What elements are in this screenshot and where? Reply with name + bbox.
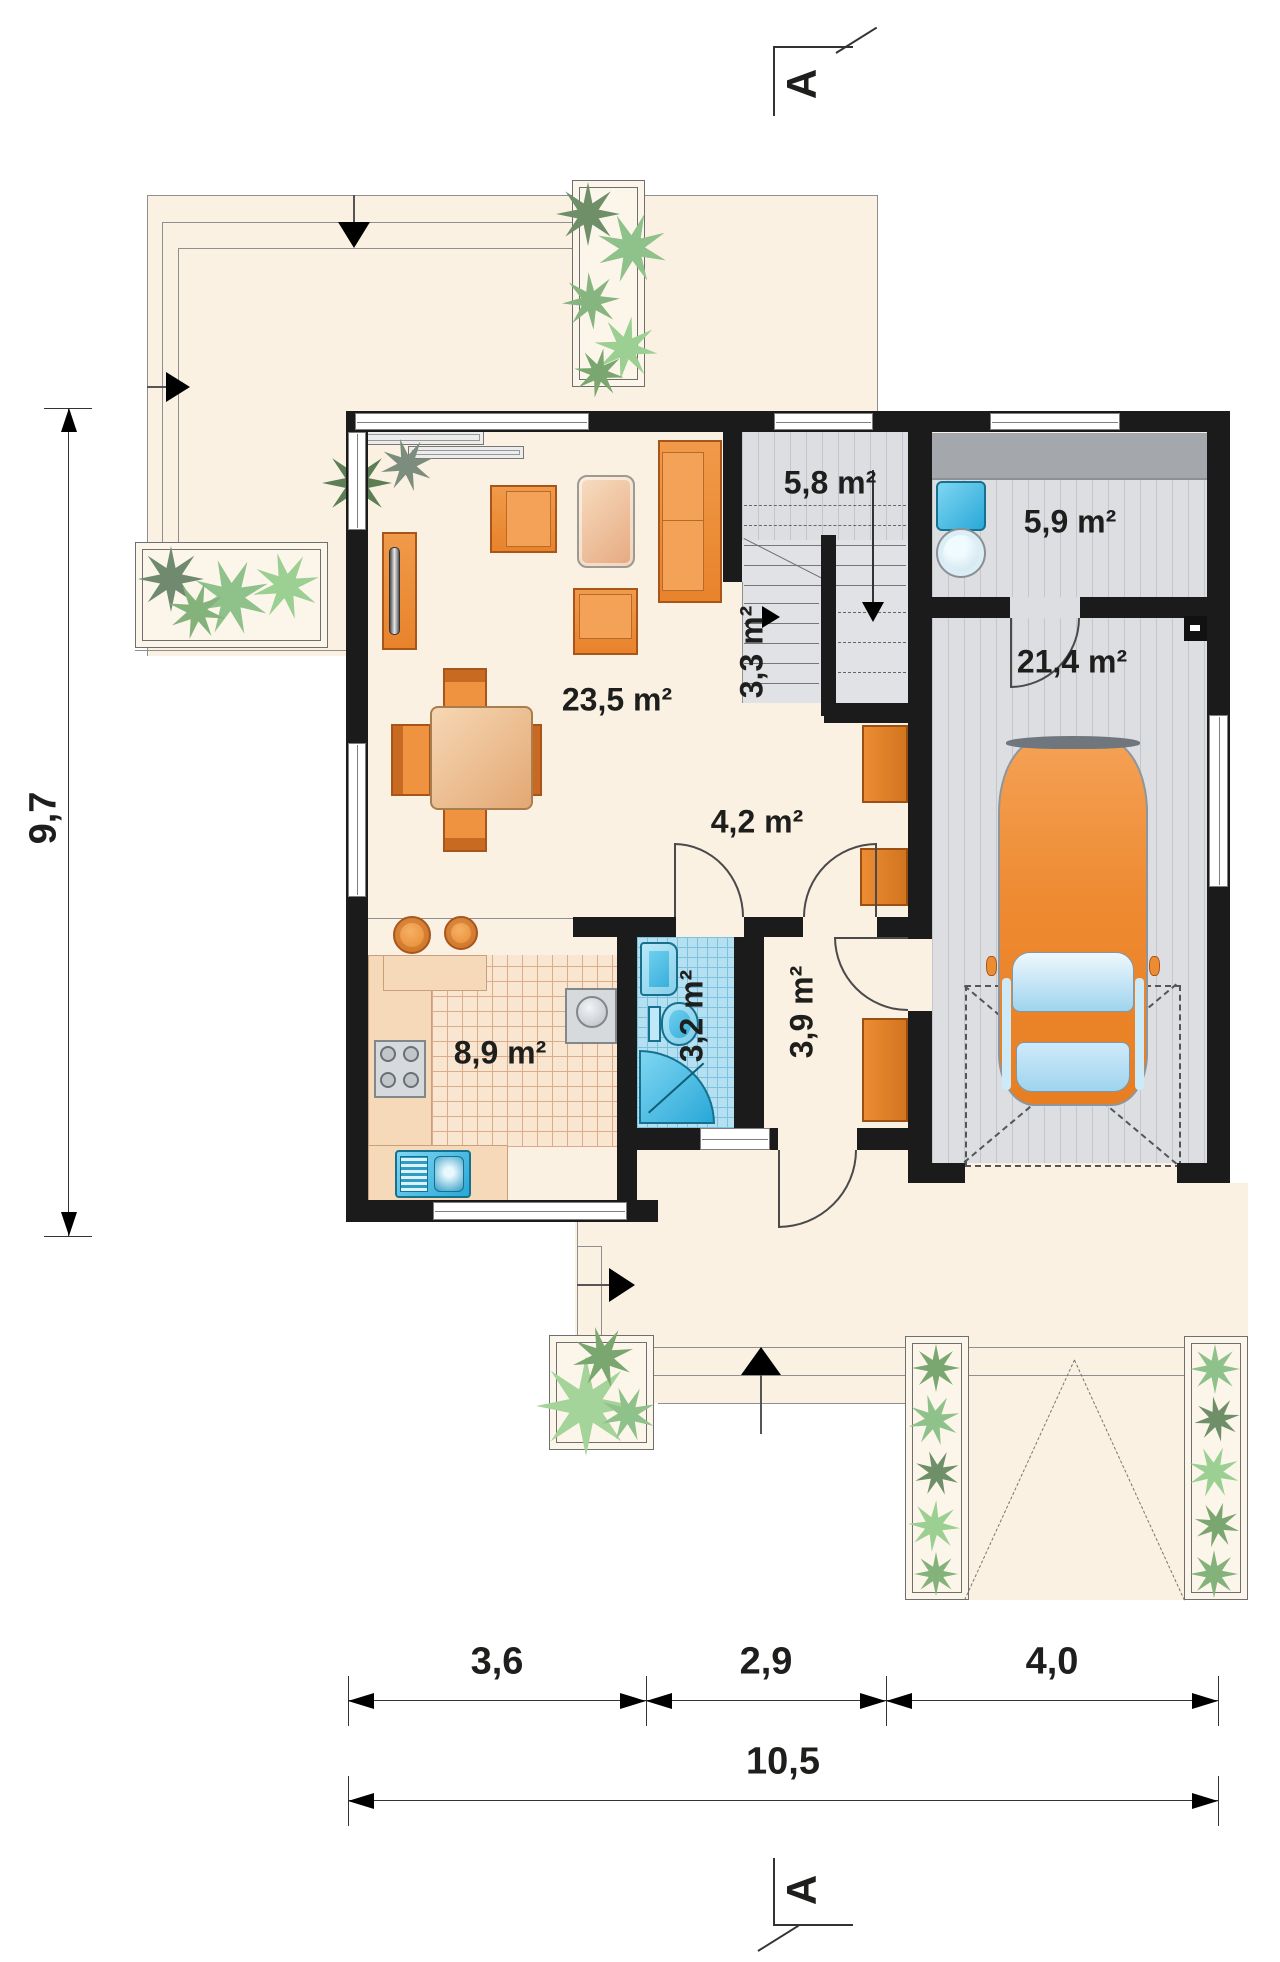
wall-bath-hall — [734, 937, 764, 1128]
terrace-edge — [135, 650, 346, 651]
dim-label-height: 9,7 — [23, 792, 66, 845]
window-bench — [359, 430, 484, 445]
dim-line — [68, 408, 69, 1236]
dim-arrow-left — [348, 1693, 374, 1709]
car-side-window — [1135, 978, 1144, 1090]
room-label-vestibule: 4,2 m² — [711, 804, 803, 841]
door-leaf — [674, 843, 676, 917]
section-marker-slash — [835, 27, 877, 54]
section-marker-line — [773, 1924, 853, 1926]
door-opening — [778, 1128, 857, 1150]
walk-direction-arrow-down — [338, 222, 370, 248]
porch-step-line — [601, 1375, 1184, 1376]
terrace-edge — [877, 195, 878, 411]
door-opening — [676, 917, 744, 937]
dining-chair — [443, 808, 487, 852]
section-marker-line — [773, 46, 775, 116]
dim-line — [348, 1800, 1218, 1801]
window — [348, 432, 366, 530]
section-marker-slash — [757, 1925, 799, 1952]
stove-burner — [380, 1046, 396, 1062]
sofa-cushion-line — [662, 520, 704, 521]
window — [774, 413, 873, 430]
stair-winder-dashed — [838, 672, 906, 673]
door-leaf — [875, 843, 877, 917]
bar-stool — [393, 916, 431, 954]
car-front-trim — [1006, 736, 1140, 749]
plant-icon — [914, 1552, 958, 1596]
terrace-edge — [178, 248, 572, 249]
fridge-top-circle — [576, 996, 608, 1028]
wall-living-stairs — [723, 432, 742, 582]
door-opening — [908, 939, 932, 1011]
dim-tick — [44, 1236, 92, 1237]
stove-burner — [403, 1046, 419, 1062]
section-marker-line — [773, 1858, 775, 1926]
porch-edge — [577, 1246, 601, 1247]
dim-arrow-right — [1192, 1793, 1218, 1809]
wall-stairs-bottom — [824, 703, 932, 723]
section-label-bottom: A — [778, 1875, 826, 1905]
washing-machine — [936, 528, 986, 578]
wall-kitchen-right — [617, 917, 637, 1222]
sofa-seat — [662, 452, 704, 591]
plant-icon — [536, 1356, 636, 1456]
stair-winder-dashed — [838, 642, 906, 643]
car-windshield — [1012, 952, 1134, 1012]
kitchen-counter — [383, 955, 487, 991]
room-label-staircase: 5,8 m² — [784, 465, 876, 502]
window — [990, 413, 1120, 430]
dining-table — [430, 706, 533, 810]
wall-garage-bottom-stub — [932, 1163, 965, 1183]
dim-label-segment: 3,6 — [471, 1641, 524, 1684]
stair-tread-dashed — [744, 525, 906, 526]
stair-tread-dashed — [744, 505, 906, 506]
armchair-seat — [579, 594, 632, 639]
arrow-stem — [147, 386, 166, 388]
stair-newel-wall — [821, 535, 836, 716]
terrace-floor — [147, 195, 877, 411]
dim-arrow-left — [646, 1693, 672, 1709]
room-label-living: 23,5 m² — [562, 682, 672, 719]
dim-arrow-down — [61, 1212, 77, 1236]
window-bench — [408, 446, 524, 459]
tv-screen — [389, 547, 400, 635]
arrow-stem — [353, 195, 355, 222]
stove-burner — [403, 1072, 419, 1088]
dim-tick — [1218, 1676, 1219, 1726]
plant-icon — [556, 182, 620, 246]
dim-label-segment: 2,9 — [740, 1641, 793, 1684]
door-opening — [803, 917, 877, 937]
kitchen-sink-drainer — [400, 1156, 428, 1192]
utility-counter — [932, 433, 1207, 480]
wall-stairs-garage — [908, 432, 932, 1183]
stair-arrow-down — [862, 602, 884, 622]
dim-arrow-right — [1192, 1693, 1218, 1709]
plant-icon — [1190, 1550, 1238, 1598]
arrow-stem — [577, 1284, 609, 1286]
car-side-window — [1002, 978, 1011, 1090]
dim-arrow-right — [620, 1693, 646, 1709]
armchair-seat — [506, 491, 551, 547]
door-leaf — [834, 937, 908, 939]
door-opening — [1010, 597, 1080, 618]
dim-label-segment: 4,0 — [1026, 1641, 1079, 1684]
room-label-hall: 3,9 m² — [784, 966, 821, 1058]
walk-direction-arrow-right — [166, 372, 190, 402]
kitchen-sink-bowl — [434, 1156, 464, 1192]
porch-step-line — [601, 1347, 1184, 1348]
entry-arrow-up — [741, 1347, 781, 1375]
arrow-stem — [760, 1375, 762, 1434]
window — [348, 743, 366, 897]
window — [433, 1202, 627, 1220]
window — [700, 1128, 770, 1150]
room-label-staircase-lower: 3,3 m² — [734, 606, 771, 698]
dining-chair — [391, 724, 431, 796]
room-label-utility: 5,9 m² — [1024, 504, 1116, 541]
entry-arrow-right — [609, 1268, 635, 1302]
wardrobe — [862, 1018, 908, 1122]
floor-plan-canvas: 23,5 m² 8,9 m² 3,2 m² 3,9 m² 4,2 m² 5,8 … — [0, 0, 1280, 1962]
bathroom-sink — [640, 942, 678, 996]
dim-arrow-up — [61, 408, 77, 432]
dim-arrow-left — [886, 1693, 912, 1709]
dim-arrow-left — [348, 1793, 374, 1809]
stove-burner — [380, 1072, 396, 1088]
door-leaf — [778, 1150, 780, 1228]
window — [1209, 715, 1228, 887]
vent-mark — [1190, 625, 1200, 631]
dim-label-total: 10,5 — [746, 1741, 820, 1784]
coffee-table — [577, 475, 635, 568]
room-label-bathroom: 3,2 m² — [674, 970, 711, 1062]
room-label-kitchen: 8,9 m² — [454, 1035, 546, 1072]
utility-sink — [936, 481, 986, 531]
stair-tread — [744, 603, 819, 604]
car-rear-window — [1016, 1042, 1130, 1092]
dim-arrow-right — [860, 1693, 886, 1709]
car-mirror — [986, 956, 997, 976]
toilet-tank — [648, 1006, 661, 1042]
window — [355, 413, 589, 430]
porch-step-line — [658, 1403, 905, 1404]
plant-icon — [912, 1344, 960, 1392]
section-label-top: A — [778, 69, 826, 99]
wardrobe — [862, 725, 908, 803]
dim-line — [348, 1700, 1218, 1701]
terrace-edge — [147, 195, 877, 196]
plant-icon — [1190, 1344, 1240, 1394]
room-label-garage: 21,4 m² — [1017, 644, 1127, 681]
dim-tick — [1218, 1776, 1219, 1826]
door-leaf — [1010, 618, 1012, 688]
bar-stool — [444, 916, 478, 950]
car-mirror — [1149, 956, 1160, 976]
